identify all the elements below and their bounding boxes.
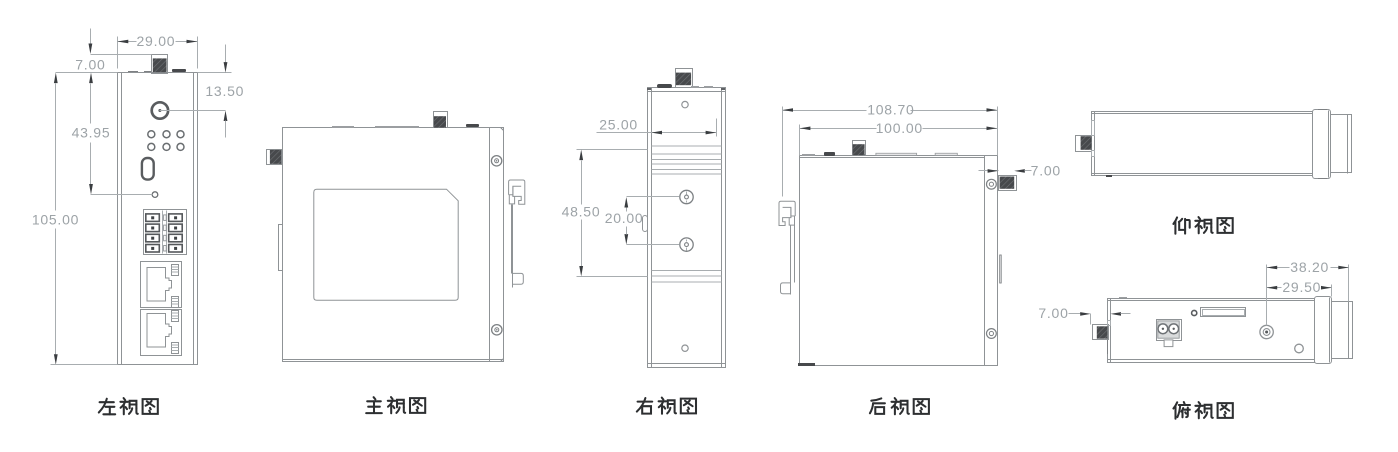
svg-text:48.50: 48.50 bbox=[562, 204, 601, 220]
svg-text:43.95: 43.95 bbox=[72, 125, 111, 141]
svg-text:7.00: 7.00 bbox=[1031, 162, 1061, 178]
svg-text:29.00: 29.00 bbox=[137, 33, 176, 49]
svg-text:7.00: 7.00 bbox=[1038, 305, 1068, 321]
svg-text:20.00: 20.00 bbox=[605, 210, 644, 226]
svg-text:108.70: 108.70 bbox=[867, 102, 914, 118]
svg-text:38.20: 38.20 bbox=[1290, 259, 1329, 275]
svg-text:13.50: 13.50 bbox=[205, 83, 244, 99]
svg-text:29.50: 29.50 bbox=[1282, 279, 1321, 295]
svg-text:100.00: 100.00 bbox=[876, 120, 923, 136]
svg-text:25.00: 25.00 bbox=[599, 117, 638, 133]
svg-text:7.00: 7.00 bbox=[75, 56, 105, 72]
svg-text:105.00: 105.00 bbox=[32, 211, 79, 227]
